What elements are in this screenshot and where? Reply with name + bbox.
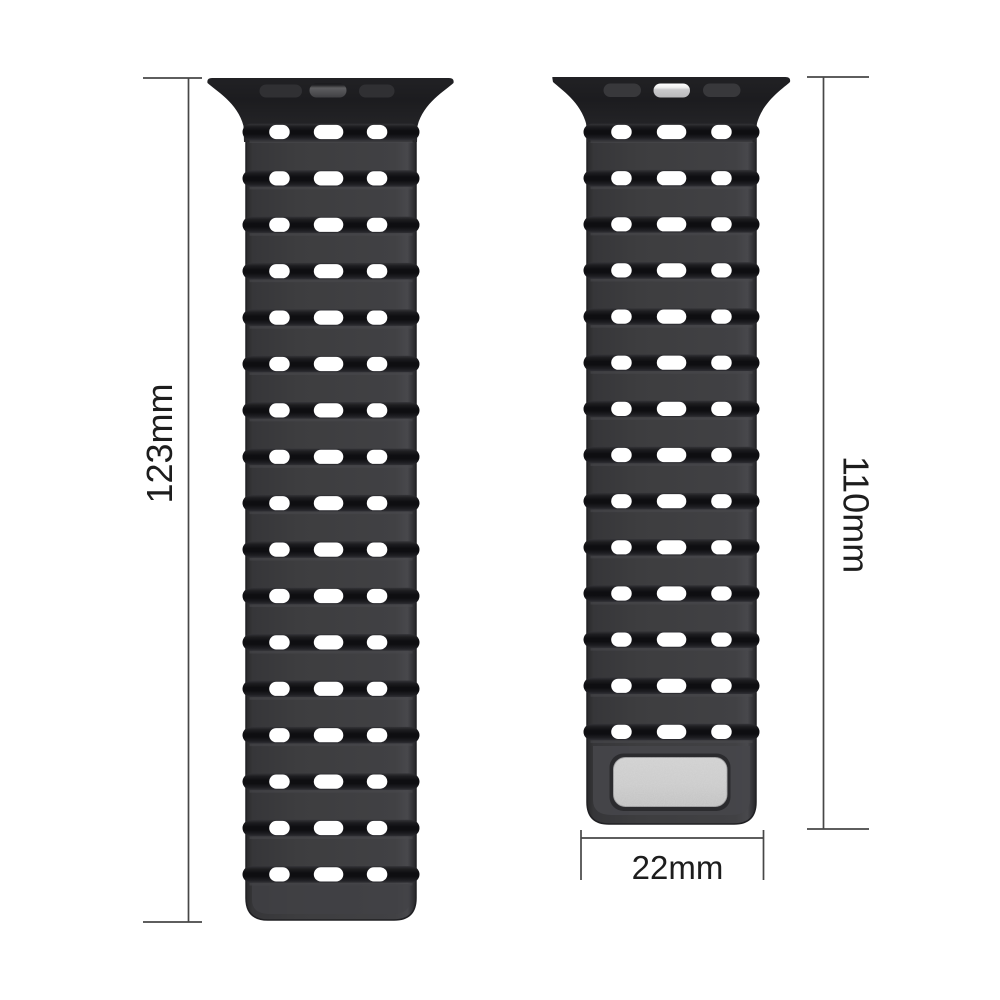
svg-text:110mm: 110mm — [836, 456, 877, 573]
svg-text:123mm: 123mm — [139, 383, 180, 503]
svg-text:22mm: 22mm — [632, 849, 724, 886]
